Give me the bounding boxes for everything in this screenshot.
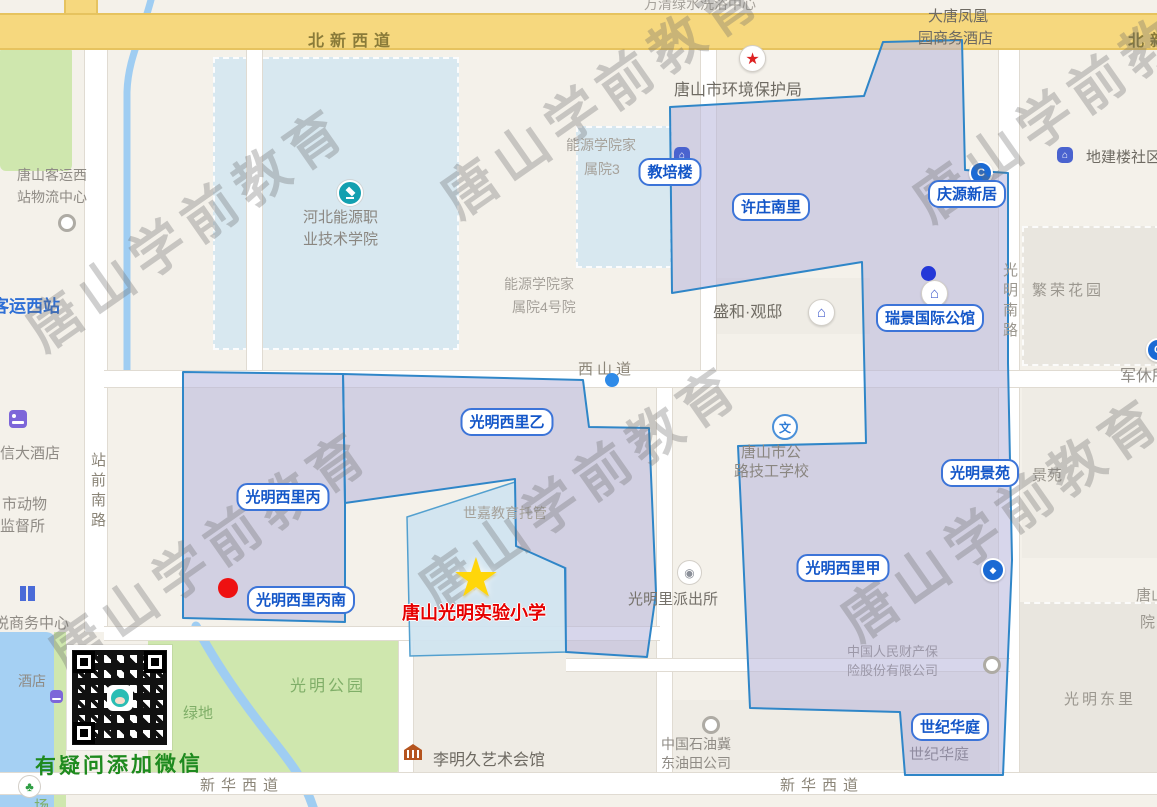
school-star-icon[interactable]: ★ bbox=[452, 551, 500, 605]
building-icon-yue[interactable] bbox=[20, 586, 35, 601]
area-nengyuan4-line2: 属院4号院 bbox=[512, 297, 576, 317]
blue-dot-ruijing[interactable] bbox=[921, 266, 936, 281]
poi-env-bureau: 唐山市环境保护局 bbox=[674, 76, 802, 100]
poi-gonglu-school-line1: 唐山市公 bbox=[741, 441, 801, 462]
area-tangshan-fragment: 唐山 bbox=[1136, 584, 1157, 605]
qr-avatar bbox=[107, 685, 133, 711]
area-chang-fragment: 场 bbox=[34, 795, 49, 807]
district-label-qingyuanxinju[interactable]: 庆源新居 bbox=[928, 180, 1006, 208]
area-nengyuan4-line1: 能源学院家 bbox=[504, 274, 574, 294]
district-east-polygon[interactable] bbox=[670, 40, 1012, 775]
bed-icon-xinda[interactable] bbox=[9, 410, 27, 428]
poi-dijianlou: 地建楼社区 bbox=[1086, 146, 1157, 167]
poi-jiudian: 酒店 bbox=[18, 671, 46, 691]
wechat-qr-code bbox=[67, 645, 172, 750]
museum-icon-liming[interactable] bbox=[404, 744, 422, 760]
district-label-jingyuan[interactable]: 光明景苑 bbox=[941, 459, 1019, 487]
house-icon-ruijing[interactable]: ⌂ bbox=[921, 280, 948, 307]
ring-icon-oilfield[interactable] bbox=[702, 716, 720, 734]
poi-keyun-logistics-line2: 站物流中心 bbox=[17, 187, 87, 207]
house-icon-dijianlou[interactable]: ⌂ bbox=[1057, 147, 1073, 163]
district-label-xiliyi[interactable]: 光明西里乙 bbox=[460, 408, 553, 436]
area-fanronghuayuan: 繁荣花园 bbox=[1032, 279, 1104, 300]
blue-dot-xishandao[interactable] bbox=[605, 373, 619, 387]
road-label-xinhuaxidao-left: 新华西道 bbox=[200, 774, 284, 795]
red-star-icon[interactable]: ★ bbox=[739, 45, 766, 72]
poi-shenghe: 盛和·观邸 bbox=[713, 298, 782, 322]
red-dot-bingnan[interactable] bbox=[218, 578, 238, 598]
area-jingyuan-gray: 景苑 bbox=[1032, 464, 1062, 485]
ring-icon-picc[interactable] bbox=[983, 656, 1001, 674]
poi-keyunxizhan: 客运西站 bbox=[0, 292, 60, 317]
area-shijia-daycare: 世嘉教育托管 bbox=[463, 503, 547, 523]
road-label-xinhuaxidao-right: 新华西道 bbox=[780, 774, 864, 795]
district-label-jiaopeilou[interactable]: 教培楼 bbox=[638, 158, 701, 186]
poi-hebei-college-line1: 河北能源职 bbox=[303, 206, 378, 227]
area-guangmingdongli: 光明东里 bbox=[1064, 688, 1136, 709]
bank-icon-ccb[interactable]: ◆ bbox=[981, 558, 1005, 582]
police-station-icon[interactable]: ◉ bbox=[677, 560, 702, 585]
graduation-cap-icon[interactable] bbox=[337, 180, 363, 206]
qr-finder-tr bbox=[144, 651, 166, 673]
area-guangming-park: 光明公园 bbox=[290, 672, 366, 696]
district-layer bbox=[0, 0, 1157, 807]
poi-liming-museum: 李明久艺术会馆 bbox=[433, 746, 545, 770]
area-shijihuating-gray: 世纪华庭 bbox=[909, 743, 969, 764]
area-nengyuan3-line2: 属院3 bbox=[584, 159, 620, 179]
qr-finder-tl bbox=[73, 651, 95, 673]
poi-yue-business-center: 悦商务中心 bbox=[0, 612, 69, 633]
poi-shidongwu-line2: 监督所 bbox=[0, 515, 45, 536]
area-junxiusuo: 军休所 bbox=[1120, 362, 1157, 386]
road-label-zhanqiannanlu: 站前南路 bbox=[87, 452, 108, 532]
map-canvas[interactable]: 北新西道 北新西道 西山道 新华西道 新华西道 站前南路 光明南路 万清绿水洗浴… bbox=[0, 0, 1157, 807]
school-name: 唐山光明实验小学 bbox=[402, 599, 546, 625]
district-label-xuzhuangnanli[interactable]: 许庄南里 bbox=[732, 193, 810, 221]
district-label-xilibingnan[interactable]: 光明西里丙南 bbox=[247, 586, 355, 614]
road-label-guangmingnanlu: 光明南路 bbox=[999, 262, 1020, 342]
poi-hebei-college-line2: 业技术学院 bbox=[303, 228, 378, 249]
poi-shidongwu-line1: 市动物 bbox=[2, 493, 47, 514]
poi-gonglu-school-line2: 路技工学校 bbox=[734, 460, 809, 481]
poi-keyun-logistics-line1: 唐山客运西 bbox=[17, 165, 87, 185]
district-label-shijihuating[interactable]: 世纪华庭 bbox=[911, 713, 989, 741]
poi-xinda-hotel: 信大酒店 bbox=[0, 442, 60, 463]
poi-bath-center: 万清绿水洗浴中心 bbox=[644, 0, 756, 14]
area-nengyuan3-line1: 能源学院家 bbox=[566, 135, 636, 155]
poi-oilfield-line1: 中国石油冀 bbox=[661, 734, 731, 754]
district-label-xilibing[interactable]: 光明西里丙 bbox=[236, 483, 329, 511]
bed-icon-jiudian[interactable] bbox=[50, 690, 63, 703]
house-icon-shenghe[interactable]: ⌂ bbox=[808, 299, 835, 326]
wechat-note-text: 有疑问添加微信 bbox=[35, 748, 203, 781]
poi-paichusuo: 光明里派出所 bbox=[628, 588, 718, 609]
district-label-xilijia[interactable]: 光明西里甲 bbox=[796, 554, 889, 582]
station-ring-icon[interactable] bbox=[58, 214, 76, 232]
district-label-ruijing[interactable]: 瑞景国际公馆 bbox=[876, 304, 984, 332]
poi-datang-hotel-line1: 大唐凤凰 bbox=[928, 5, 988, 26]
culture-wen-icon[interactable]: 文 bbox=[772, 414, 798, 440]
poi-oilfield-line2: 东油田公司 bbox=[661, 753, 731, 773]
area-lvdi: 绿地 bbox=[183, 702, 213, 723]
poi-datang-hotel-line2: 园商务酒店 bbox=[918, 27, 993, 48]
poi-picc-line1: 中国人民财产保 bbox=[847, 641, 938, 660]
poi-picc-line2: 险股份有限公司 bbox=[847, 660, 938, 679]
qr-finder-bl bbox=[73, 722, 95, 744]
area-yuan-fragment: 院 bbox=[1140, 611, 1155, 632]
